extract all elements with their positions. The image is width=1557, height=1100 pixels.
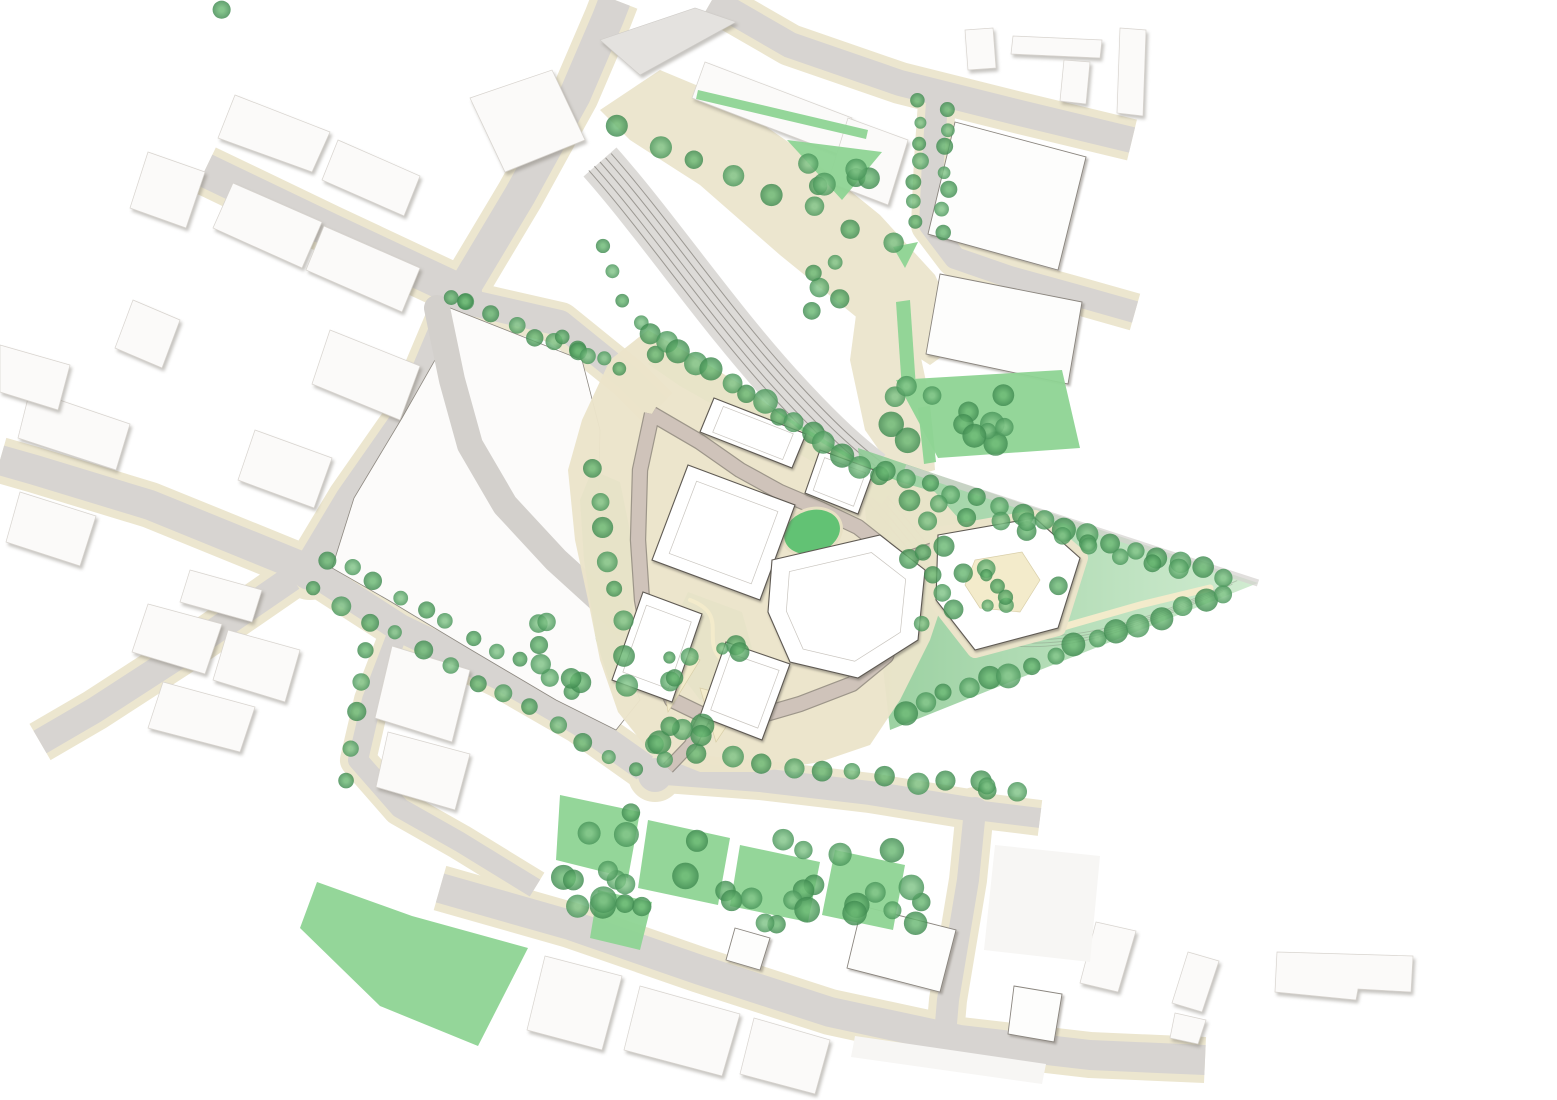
street-tree [521,698,538,715]
street-tree [605,264,619,278]
street-tree [596,239,610,253]
grove-tree [772,829,794,851]
street-tree [1150,607,1173,630]
street-tree [912,137,926,151]
street-tree [443,657,460,674]
street-tree [513,652,528,667]
grove-tree [578,822,601,845]
street-tree [1169,559,1189,579]
grove-tree [444,290,459,305]
street-tree [613,645,635,667]
street-tree [875,461,895,481]
street-tree [1054,527,1072,545]
street-tree [629,762,643,776]
street-tree [347,702,366,721]
street-tree [936,138,953,155]
street-tree [784,758,804,778]
grove-tree [563,869,584,890]
bldg-topleft-5 [322,140,420,216]
street-tree [393,591,408,606]
grove-tree [794,897,820,923]
bldg-br-long [1275,952,1413,1000]
street-tree [906,194,921,209]
street-tree [957,508,976,527]
bldg-left-3 [0,345,70,410]
grove-tree [730,642,750,662]
street-tree [526,329,543,346]
grove-tree [915,544,931,560]
grove-tree [914,616,930,632]
street-tree [968,488,986,506]
street-tree [848,456,871,479]
street-tree [934,202,949,217]
grove-tree [457,293,473,309]
street-tree [509,317,526,334]
street-tree [844,763,861,780]
street-tree [364,572,382,590]
street-tree [940,181,957,198]
grove-tree [962,424,986,448]
grove-tree [933,584,951,602]
grove-tree [660,717,679,736]
street-tree [1035,510,1055,530]
street-tree [615,294,629,308]
grove-tree [716,642,728,654]
grove-tree [954,563,973,582]
street-tree [573,733,592,752]
street-tree [1112,549,1129,566]
street-tree [1144,554,1162,572]
street-tree [912,153,929,170]
street-tree [470,675,487,692]
street-tree [992,512,1011,531]
street-tree [959,677,980,698]
street-tree [908,215,922,229]
street-tree [352,673,369,690]
street-tree [583,459,602,478]
grove-tree [918,511,937,530]
street-tree [760,184,782,206]
grove-topleft-single [213,1,231,19]
grove-tree [690,725,711,746]
street-tree [613,610,633,630]
grove-tree [530,636,548,654]
street-tree [1214,569,1232,587]
street-tree [489,644,505,660]
grove-tree [794,841,812,859]
masterplan-canvas [0,0,1557,1100]
street-tree [437,613,453,629]
street-tree [592,517,613,538]
street-tree [606,581,622,597]
street-tree [686,743,706,763]
street-tree [916,692,936,712]
grove-tree [992,384,1014,406]
grove-tree [686,830,708,852]
street-tree [935,771,955,791]
grove-tree [828,255,843,270]
grove-tree [805,265,821,281]
grove-tree [978,777,995,794]
grove-tree [663,651,675,663]
street-tree [494,684,512,702]
street-tree [840,220,859,239]
bldg-topright-4 [1060,60,1090,104]
bldg-br-l [1008,986,1062,1042]
site-plan [0,0,1557,1100]
grove-tree [622,803,641,822]
street-tree [699,357,722,380]
grove-tree [904,911,928,935]
street-tree [930,495,948,513]
grove-tree [842,901,867,926]
street-tree [938,166,951,179]
street-tree [805,196,824,215]
grove-tree [865,882,886,903]
street-tree [597,351,611,365]
grove-tree [615,874,636,895]
street-tree [343,741,359,757]
grove-tree [561,668,582,689]
grove-tree [899,875,925,901]
street-tree [883,232,903,252]
street-tree [722,746,744,768]
street-tree [388,625,402,639]
street-tree [914,117,926,129]
grove-tree [813,173,836,196]
street-tree [361,614,379,632]
street-tree [1061,633,1085,657]
street-tree [650,136,672,158]
grove-tree [880,838,904,862]
grove-tree [531,654,551,674]
street-tree [874,766,895,787]
grove-tree [924,566,941,583]
grove-tree [1018,512,1037,531]
street-tree [331,596,351,616]
street-tree [685,151,703,169]
street-tree [616,674,638,696]
grove-tree [1080,538,1097,555]
grove-tree [756,914,775,933]
grove-tree [537,613,555,631]
bldg-mid-1 [312,330,420,420]
street-tree [606,115,628,137]
street-tree [934,684,951,701]
street-tree [907,773,929,795]
grove-tree [980,569,992,581]
street-tree [550,716,567,733]
bldg-topright-3 [1117,28,1146,116]
grove-tree [666,669,683,686]
street-tree [894,701,918,725]
street-tree [1104,619,1128,643]
street-tree [1126,614,1150,638]
street-tree [910,93,925,108]
street-tree [905,174,921,190]
grove-tree [798,153,818,173]
grove-tree [845,159,867,181]
street-tree [1023,658,1040,675]
street-tree [466,631,481,646]
street-tree [612,362,626,376]
grove-tree [944,600,964,620]
bldg-mid-2 [238,430,332,508]
street-tree [597,551,618,572]
street-tree [318,552,336,570]
grove-tree [982,600,994,612]
grove-tree [213,1,231,19]
bldg-j2-3 [213,630,300,702]
grove-tree [721,890,742,911]
grove-tree [590,886,617,913]
street-tree [996,664,1021,689]
street-tree [941,123,955,137]
grove-tree [580,348,596,364]
grove-tree [896,376,917,397]
street-tree [357,642,373,658]
street-tree [1173,596,1193,616]
grove-tree [933,536,954,557]
grove-tree [895,428,921,454]
street-tree [602,750,616,764]
street-tree [940,102,955,117]
bldg-br-small-1 [1172,952,1219,1012]
street-tree [306,581,320,595]
street-tree [592,493,610,511]
street-tree [345,559,361,575]
grove-tree [614,822,639,847]
street-tree [784,412,804,432]
street-tree [922,474,939,491]
grove-tree [598,861,618,881]
grove-tree [1049,577,1068,596]
street-tree [1214,585,1232,603]
street-tree [482,305,499,322]
grove-tree [1007,782,1027,802]
grove-tree [672,863,699,890]
grove-tree [555,330,570,345]
street-tree [1127,542,1144,559]
grove-tree [803,302,821,320]
grove-tree [830,289,849,308]
grove-tree [657,752,673,768]
grove-tree [995,418,1013,436]
bldg-topleft-6 [130,152,205,228]
street-tree [1192,556,1214,578]
bldg-topright-2 [1011,36,1102,58]
bldg-j2-4 [148,682,255,752]
grove-tree [616,894,635,913]
street-tree [1048,648,1065,665]
bldg-bottom-1 [527,956,622,1050]
grove-tree [632,897,651,916]
grove-tree [998,590,1013,605]
street-tree [751,753,771,773]
bldg-topleft-3 [115,300,180,368]
grove-tree [741,887,763,909]
grove-tree [828,843,851,866]
bldg-topright-1 [965,28,996,70]
street-tree [812,761,833,782]
grove-tree [566,895,589,918]
street-tree [414,641,433,660]
street-tree [737,385,755,403]
street-tree [896,469,915,488]
street-tree [723,165,745,187]
junction [962,797,988,823]
street-tree [936,225,951,240]
grove-tree [883,901,901,919]
grove-tree [923,386,942,405]
street-tree [338,773,354,789]
street-tree [418,601,435,618]
grove-tree [681,648,699,666]
street-tree [899,490,921,512]
bldg-br-faint [984,845,1100,962]
